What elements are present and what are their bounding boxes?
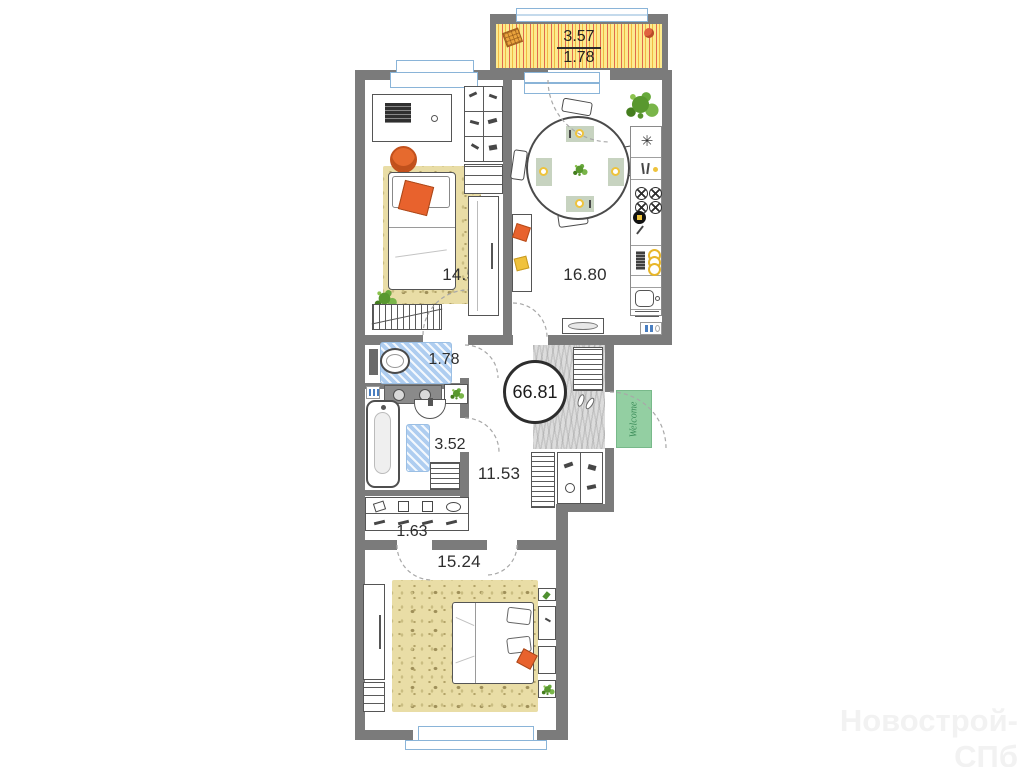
cabinet-door-line: [477, 201, 478, 311]
nightstand-a: [538, 606, 556, 640]
mouse-icon: [431, 115, 438, 122]
food-ring: [648, 263, 661, 276]
plant-icon-bedroom2: [544, 686, 551, 693]
hall-shelf: [531, 452, 555, 508]
dining-chair-n: [561, 98, 593, 117]
plate-icon: [611, 167, 620, 176]
shelf-item: [469, 91, 478, 97]
shoe: [576, 393, 586, 407]
radiator-diagonal: [372, 309, 443, 325]
duvet-line: [475, 603, 476, 683]
nightstand-item: [545, 618, 551, 622]
plant-icon-shelf: [453, 390, 460, 397]
door-arc-kitchen: [513, 303, 547, 337]
watermark: Новострой-СПб: [792, 703, 1018, 767]
cutlery-icon: [589, 200, 591, 208]
nightstand-top: [538, 588, 556, 601]
cutlery-icon: [569, 130, 571, 138]
green-item: [542, 591, 550, 600]
closet-box-icon: [398, 501, 409, 512]
cabinet-item: [587, 464, 596, 471]
wall-bath-closet: [365, 490, 461, 496]
shoe-glyph: [446, 520, 457, 526]
room-label-bedroom2: 15.24: [428, 552, 490, 572]
stove-burner: [649, 201, 662, 214]
towel-bar: [377, 389, 379, 396]
plate-icon: [575, 199, 584, 208]
grill-icon: [636, 251, 645, 270]
wardrobe-handle: [379, 615, 381, 649]
bed-blanket-orange: [398, 180, 434, 216]
radiator-dial: [655, 325, 660, 332]
dining-table: [526, 116, 630, 220]
wardrobe-cabinet: [468, 196, 499, 316]
plate-icon: [539, 167, 548, 176]
washer-door: [393, 389, 405, 401]
toilet-bowl: [386, 354, 404, 368]
bed-double: [452, 602, 534, 684]
duvet-fold: [455, 656, 474, 664]
console-oval: [568, 322, 598, 330]
desk-chair-icon: [390, 146, 417, 173]
toilet-tank: [369, 349, 378, 375]
room-label-kitchen: 16.80: [555, 265, 615, 285]
laundry-basket-icon: [430, 462, 460, 490]
bath-sink-icon: [414, 399, 446, 419]
balcony-window: [516, 8, 648, 22]
wall-right-upper: [662, 70, 672, 345]
stove-burner: [635, 187, 648, 200]
shelf-item: [489, 94, 498, 100]
utensil-icon: [646, 163, 650, 174]
room-label-hallway: 11.53: [468, 464, 530, 484]
room-label-bathroom: 3.52: [424, 436, 476, 454]
cabinet-item: [565, 483, 575, 493]
room-label-wc: 1.78: [416, 351, 472, 369]
wall-bedroom2-top: [355, 540, 568, 550]
door-gap-bedroom2-b: [487, 540, 517, 550]
radiator-icon-entry: [640, 322, 662, 335]
bathtub-icon: [366, 400, 400, 488]
kettle-handle: [636, 225, 644, 234]
floor-plan: 3.57 1.78 14.53: [0, 0, 1024, 767]
room-label-closet: 1.63: [388, 523, 436, 541]
balcony-door: [524, 72, 600, 94]
wall-divider-bedroom-kitchen: [503, 80, 512, 335]
faucet-icon: [655, 296, 660, 301]
plant-icon-kitchen: [632, 96, 649, 113]
plant-icon-table: [576, 166, 584, 174]
cabinet-handle: [491, 243, 493, 269]
towel-bar: [373, 389, 375, 396]
placemat-e: [608, 158, 624, 186]
door-gap-kitchen: [513, 335, 548, 345]
cabinet-item: [587, 484, 597, 490]
hall-cabinet: [557, 452, 603, 504]
kettle-icon: [633, 211, 646, 224]
door-arc-bedroom2-a: [397, 545, 432, 580]
wardrobe-shelves: [464, 86, 503, 162]
shoe-glyph: [374, 520, 385, 526]
vent-icon: ✳: [631, 131, 663, 153]
shelf-item: [470, 120, 479, 125]
bath-faucet: [428, 398, 433, 406]
console-table: [562, 318, 604, 334]
total-area-value: 66.81: [512, 382, 557, 403]
wardrobe-drawers: [464, 164, 503, 194]
radiator-bedroom1: [372, 304, 442, 330]
welcome-mat: Welcome: [616, 390, 652, 448]
duvet-fold: [456, 617, 475, 626]
nightstand-b: [538, 646, 556, 674]
placemat-n: [566, 126, 594, 142]
door-gap-entry: [605, 392, 614, 448]
shoes-icon: [576, 394, 596, 412]
kettle-lid: [637, 215, 642, 220]
towel-bar: [369, 389, 371, 396]
sofa-pillow-yellow: [514, 256, 530, 272]
sofa-pillow-orange: [512, 223, 531, 242]
plate-icon: [575, 129, 584, 138]
balcony-area-total: 3.57: [557, 28, 600, 49]
bed-pillow: [506, 607, 532, 626]
shelf-item: [471, 143, 479, 150]
shoe-cabinet: [573, 347, 603, 391]
flowerpot-icon: [644, 28, 654, 38]
radiator-bar: [650, 325, 653, 332]
shelf-item: [488, 118, 498, 124]
utensil-icon: [641, 163, 645, 174]
plant-icon-bedroom1: [379, 293, 391, 305]
door-gap-bedroom2-a: [397, 540, 432, 550]
wall-connector: [556, 504, 614, 512]
balcony-area-reduced: 1.78: [543, 49, 615, 67]
total-area-badge: 66.81: [503, 360, 567, 424]
closet-bag-icon: [373, 501, 386, 513]
bathtub-drain: [381, 405, 386, 410]
kitchen-sofa: [512, 214, 532, 292]
wardrobe-bedroom2: [363, 584, 385, 680]
bedroom2-window-sill: [405, 740, 547, 750]
dresser-bedroom2: [363, 682, 385, 712]
closet-box-icon: [422, 501, 433, 512]
toilet-icon: [380, 348, 410, 374]
balcony-area-label: 3.57 1.78: [543, 28, 615, 67]
kitchen-counter: ✳: [630, 126, 662, 316]
dish-rack-icon: [635, 310, 659, 317]
sink-icon: [635, 290, 654, 307]
towel-rail-icon: [366, 386, 380, 399]
bed-fold-line2: [395, 249, 447, 257]
cabinet-item: [564, 462, 574, 469]
desk: [372, 94, 452, 142]
closet-oval-icon: [446, 502, 461, 512]
radiator-bar: [645, 325, 648, 332]
welcome-mat-text: Welcome: [629, 401, 640, 437]
placemat-w: [536, 158, 552, 186]
shoe: [584, 396, 596, 410]
utensil-dot: [653, 167, 658, 172]
stove-burner: [649, 187, 662, 200]
shelf-item: [489, 144, 498, 150]
placemat-s: [566, 196, 594, 212]
bathtub-basin: [374, 412, 391, 474]
bed-fold-line: [389, 227, 455, 228]
laptop-icon: [385, 103, 411, 123]
